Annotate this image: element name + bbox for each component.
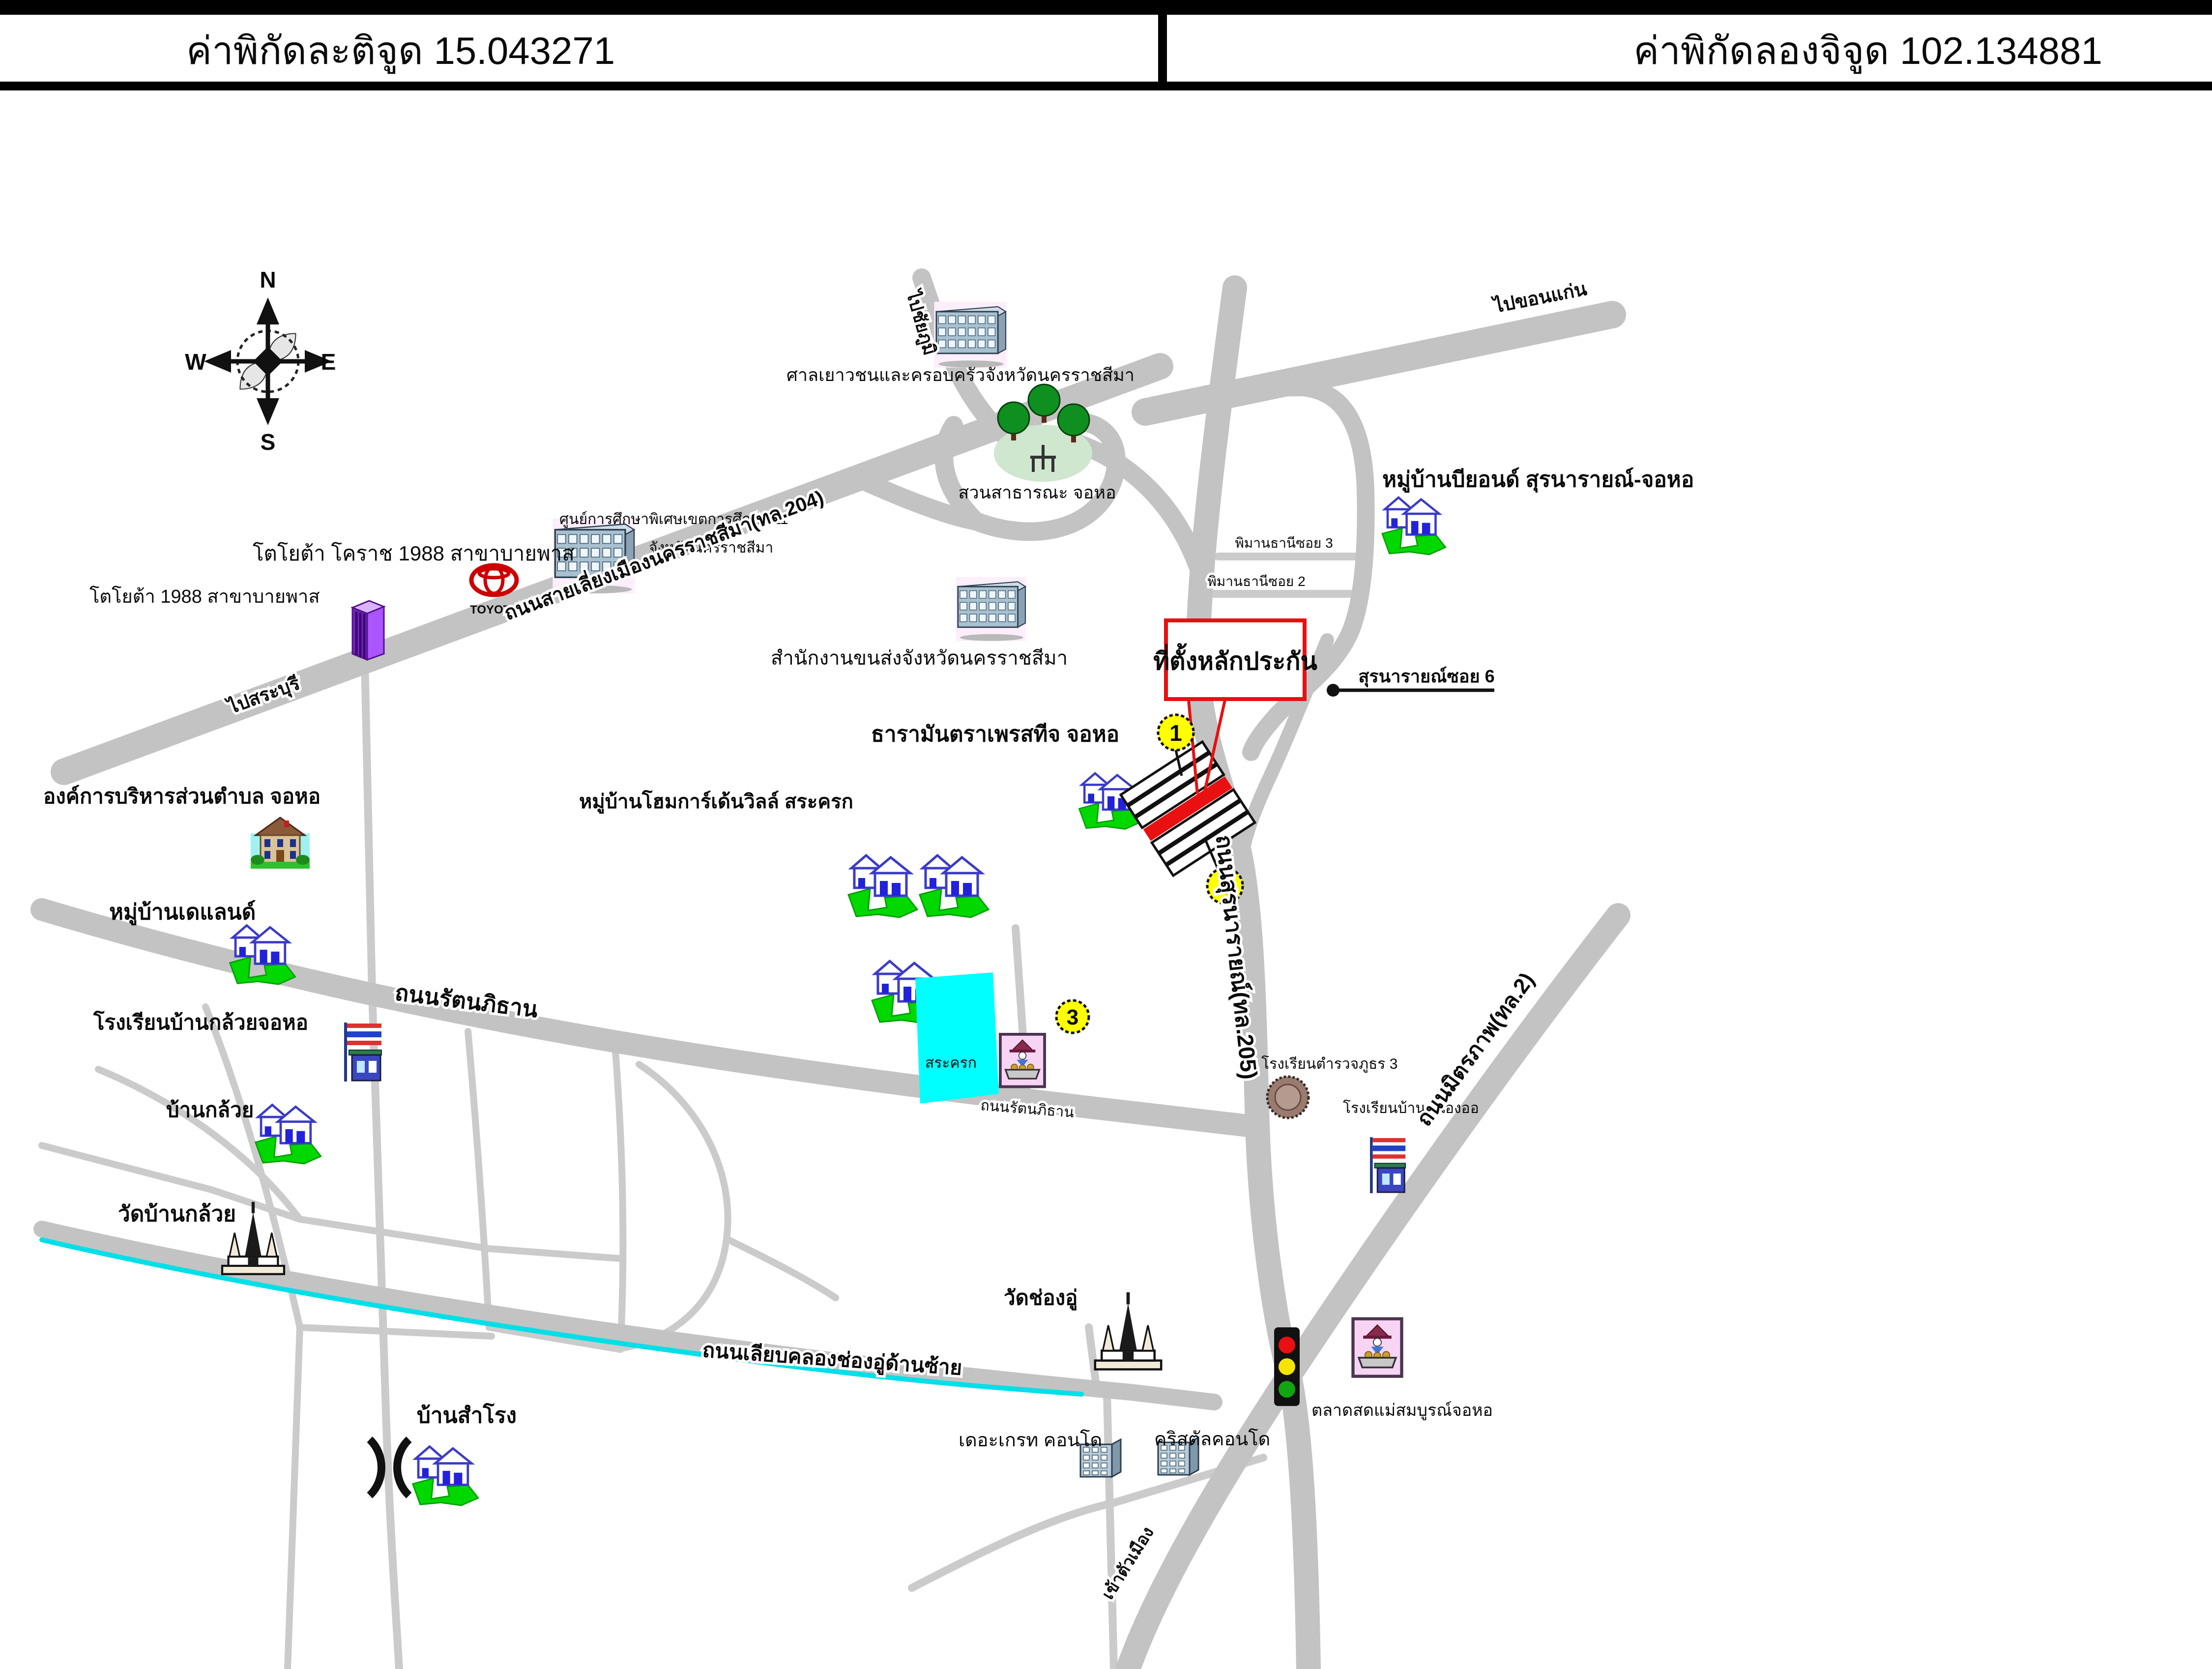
wat-chong-u-icon <box>1095 1292 1161 1370</box>
header-divider <box>1158 0 1167 90</box>
ban-samrong-label: บ้านสำโรง <box>417 1402 517 1428</box>
compass-south: S <box>261 429 276 455</box>
village-road <box>615 1051 623 1349</box>
sao-chorho-label: องค์การบริหารส่วนตำบล จอหอ <box>43 785 320 808</box>
canal-road-label: ถนนเลียบคลองช่องอู่ด้านซ้าย <box>701 1338 963 1381</box>
pond-label: สระครก <box>925 1055 977 1071</box>
map-document: ค่าพิกัดละติจูด 15.043271 ค่าพิกัดลองจิจ… <box>0 0 2212 1669</box>
sao-office-icon <box>251 818 310 869</box>
suranarai-soi6-label: สุรนารายณ์ซอย 6 <box>1358 666 1494 688</box>
latitude-value: ค่าพิกัดละติจูด 15.043271 <box>186 29 615 74</box>
village-road <box>300 1327 492 1336</box>
tara-mantra-label: ธารามันตราเพรสทีจ จอหอ <box>871 722 1119 746</box>
village-road <box>623 1064 728 1348</box>
condo-street <box>1107 1394 1114 1669</box>
header-bottom-rule <box>0 82 2212 90</box>
ban-samrong-houses-icon <box>413 1447 478 1506</box>
monument-icon <box>1000 1034 1045 1087</box>
nong-school-label: โรงเรียนบ้านหนองออ <box>1343 1099 1479 1116</box>
home-garden-houses-icon <box>848 855 917 917</box>
water-tank-icon <box>1267 1077 1309 1118</box>
toyota-label-2: โตโยต้า 1988 สาขาบายพาส <box>89 586 320 607</box>
crystal-condo-label: คริสตัลคอนโด <box>1154 1428 1270 1450</box>
police-school-label: โรงเรียนตำรวจภูธร 3 <box>1261 1055 1397 1073</box>
market-vendor-icon <box>1353 1319 1402 1376</box>
traffic-light-icon <box>1274 1327 1300 1406</box>
purple-building-icon <box>352 601 384 660</box>
wat-chong-u-label: วัดช่องอู่ <box>1004 1286 1077 1311</box>
header-top-rule <box>0 0 2212 15</box>
ban-kluay-school-label: โรงเรียนบ้านกล้วยจอหอ <box>93 1010 308 1034</box>
mittraphap-road <box>1128 915 1618 1669</box>
beyond-village-label: หมู่บ้านบียอนด์ สุรนารายณ์-จอหอ <box>1382 467 1694 493</box>
nong-school-icon <box>1370 1137 1405 1193</box>
de-land-houses-icon <box>230 926 295 985</box>
compass-west: W <box>185 349 206 375</box>
marker-3-number: 3 <box>1067 1005 1078 1029</box>
condo-street <box>912 1503 1112 1588</box>
de-land-label: หมู่บ้านเดแลนด์ <box>109 900 256 925</box>
home-garden-houses-icon <box>920 855 989 917</box>
longitude-value: ค่าพิกัดลองจิจูด 102.134881 <box>1633 29 2102 74</box>
compass-north: N <box>260 267 276 293</box>
great-condo-label: เดอะเกรท คอนโด <box>959 1429 1102 1451</box>
ban-kluay-school-icon <box>344 1023 381 1082</box>
juvenile-court-building-icon <box>934 302 1007 368</box>
to-saraburi-label: ไปสระบุรี <box>223 672 303 720</box>
beyond-village-houses-icon <box>1382 498 1446 555</box>
minor-road <box>365 661 372 993</box>
village-road <box>489 1249 620 1259</box>
village-road <box>42 1145 211 1190</box>
village-road <box>468 1031 489 1327</box>
village-road <box>727 1239 836 1298</box>
compass-east: E <box>321 349 336 375</box>
juvenile-court-label: ศาลเยาวชนและครอบครัวจังหวัดนครราชสีมา <box>786 365 1135 385</box>
marker-1-number: 1 <box>1169 720 1182 746</box>
pond: สระครก <box>915 972 999 1104</box>
compass-rose-icon: N S W E <box>185 267 336 455</box>
canal-road <box>42 1229 1214 1402</box>
village-road <box>288 1327 300 1669</box>
ban-kluay-houses-icon <box>256 1105 321 1164</box>
village-road <box>300 1219 489 1249</box>
marker-3: 3 <box>1056 1000 1089 1033</box>
park-label: สวนสาธารณะ จอหอ <box>958 482 1116 502</box>
transport-office-building-icon <box>956 577 1026 641</box>
header: ค่าพิกัดละติจูด 15.043271 ค่าพิกัดลองจิจ… <box>0 0 2212 90</box>
transport-office-label: สำนักงานขนส่งจังหวัดนครราชสีมา <box>771 647 1068 669</box>
collateral-callout-label: ที่ตั้งหลักประกัน <box>1153 643 1317 675</box>
market-label: ตลาดสดแม่สมบูรณ์จอหอ <box>1311 1401 1493 1420</box>
toyota-label: โตโยต้า โคราช 1988 สาขาบายพาส <box>253 541 575 565</box>
ban-kluay-label: บ้านกล้วย <box>166 1098 254 1121</box>
piman-soi3-label: พิมานธานีซอย 3 <box>1235 535 1333 551</box>
wat-ban-kluay-label: วัดบ้านกล้วย <box>118 1202 236 1226</box>
piman-soi2-label: พิมานธานีซอย 2 <box>1207 574 1305 589</box>
home-garden-label: หมู่บ้านโฮมการ์เด้นวิลล์ สระครก <box>579 790 853 814</box>
